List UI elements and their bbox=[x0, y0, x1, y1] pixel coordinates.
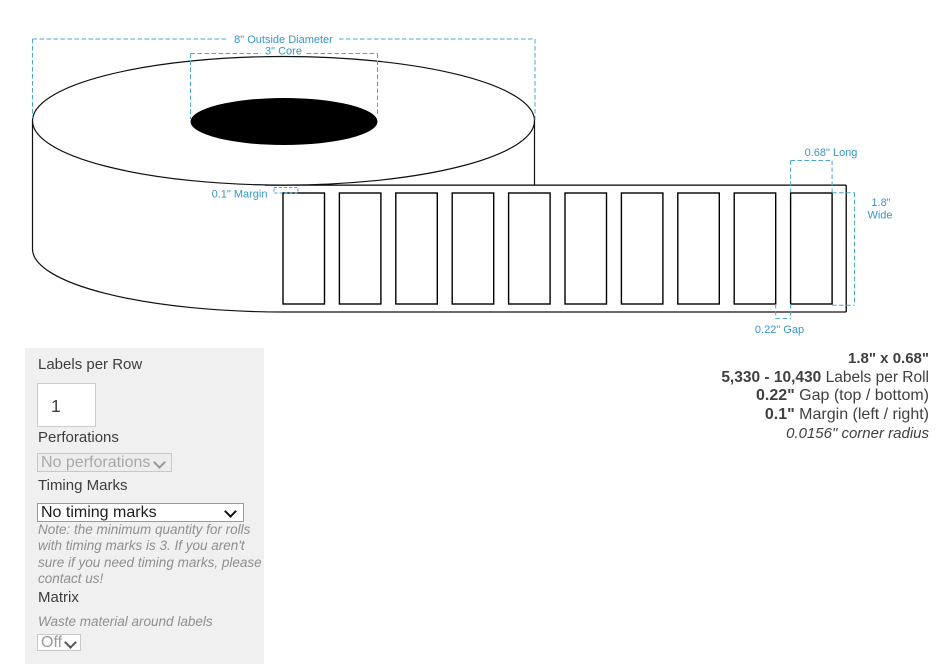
svg-text:1.8": 1.8" bbox=[871, 197, 890, 209]
svg-text:0.1" Margin: 0.1" Margin bbox=[212, 189, 268, 201]
svg-text:0.68" Long: 0.68" Long bbox=[805, 147, 858, 159]
svg-text:3" Core: 3" Core bbox=[265, 46, 302, 58]
svg-text:Wide: Wide bbox=[867, 210, 892, 222]
svg-text:0.22" Gap: 0.22" Gap bbox=[755, 324, 804, 336]
svg-text:8" Outside Diameter: 8" Outside Diameter bbox=[234, 34, 333, 46]
